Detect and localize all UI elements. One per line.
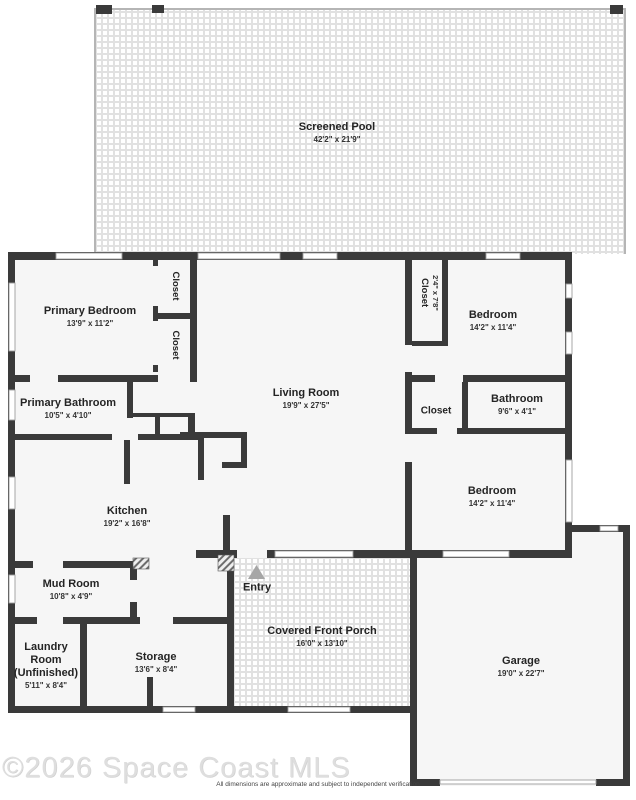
garage-top-wall [565,525,630,532]
room-name: Bedroom [469,309,517,322]
room-label-bedroom1-closet: Closet 2'4" x 7'8" [418,275,440,311]
room-dims: 42'2" x 21'9" [299,134,375,145]
room-label-hall-closet: Closet [421,405,452,418]
room-dims: 5'11" x 8'4" [13,680,79,691]
room-name: Closet [421,405,452,418]
room-label-mud-room: Mud Room 10'8" x 4'9" [43,578,100,602]
room-label-bathroom: Bathroom 9'6" x 4'1" [491,393,543,417]
room-label-laundry: Laundry Room (Unfinished) 5'11" x 8'4" [13,641,79,691]
room-name: Screened Pool [299,121,375,134]
dimensions-disclaimer: All dimensions are approximate and subje… [216,781,419,788]
room-name: Storage [135,651,178,664]
room-label-entry: Entry [243,582,271,595]
room-label-living-room: Living Room 19'9" x 27'5" [273,387,340,411]
room-label-bedroom1: Bedroom 14'2" x 11'4" [469,309,517,333]
room-dims: 13'6" x 8'4" [135,664,178,675]
garage-bottom-wall [596,779,630,786]
room-name: Entry [243,582,271,595]
room-name: Closet [169,271,181,300]
room-label-primary-bathroom: Primary Bathroom 10'5" x 4'10" [20,397,116,421]
room-name: Covered Front Porch [267,625,376,638]
room-dims: 13'9" x 11'2" [44,318,136,329]
screen-post [610,5,623,14]
room-name: Primary Bathroom [20,397,116,410]
room-dims: 10'5" x 4'10" [20,410,116,421]
room-dims: 9'6" x 4'1" [491,406,543,417]
room-dims: 14'2" x 11'4" [468,498,516,509]
room-label-screened-pool: Screened Pool 42'2" x 21'9" [299,121,375,145]
garage-door [440,780,596,784]
garage-left-wall [410,551,417,786]
room-name: Closet [169,330,181,359]
room-name: Garage [498,655,545,668]
room-label-porch: Covered Front Porch 16'0" x 13'10" [267,625,376,649]
room-label-storage: Storage 13'6" x 8'4" [135,651,178,675]
room-label-primary-closet-a: Closet [169,271,181,300]
garage-right-wall [623,525,630,786]
room-name: Mud Room [43,578,100,591]
room-name: Primary Bedroom [44,305,136,318]
room-dims: 14'2" x 11'4" [469,322,517,333]
entry-door-opening [237,550,267,558]
room-label-garage: Garage 19'0" x 22'7" [498,655,545,679]
room-dims: 19'2" x 16'8" [104,518,151,529]
room-label-primary-closet-b: Closet [169,330,181,359]
room-name: Living Room [273,387,340,400]
room-label-bedroom2: Bedroom 14'2" x 11'4" [468,485,516,509]
screen-post [96,5,112,14]
room-name: Bedroom [468,485,516,498]
room-name: Bathroom [491,393,543,406]
room-floors [8,252,630,786]
room-dims: 10'8" x 4'9" [43,591,100,602]
room-dims: 19'0" x 22'7" [498,668,545,679]
room-name: Closet [418,275,430,311]
screen-post [152,5,164,13]
room-label-primary-bedroom: Primary Bedroom 13'9" x 11'2" [44,305,136,329]
room-name: Laundry Room (Unfinished) [13,641,79,680]
room-name: Kitchen [104,505,151,518]
room-dims: 16'0" x 13'10" [267,638,376,649]
room-label-kitchen: Kitchen 19'2" x 16'8" [104,505,151,529]
room-dims: 2'4" x 7'8" [430,275,440,311]
floor-plan: Screened Pool 42'2" x 21'9" Primary Bedr… [0,0,636,800]
room-dims: 19'9" x 27'5" [273,400,340,411]
